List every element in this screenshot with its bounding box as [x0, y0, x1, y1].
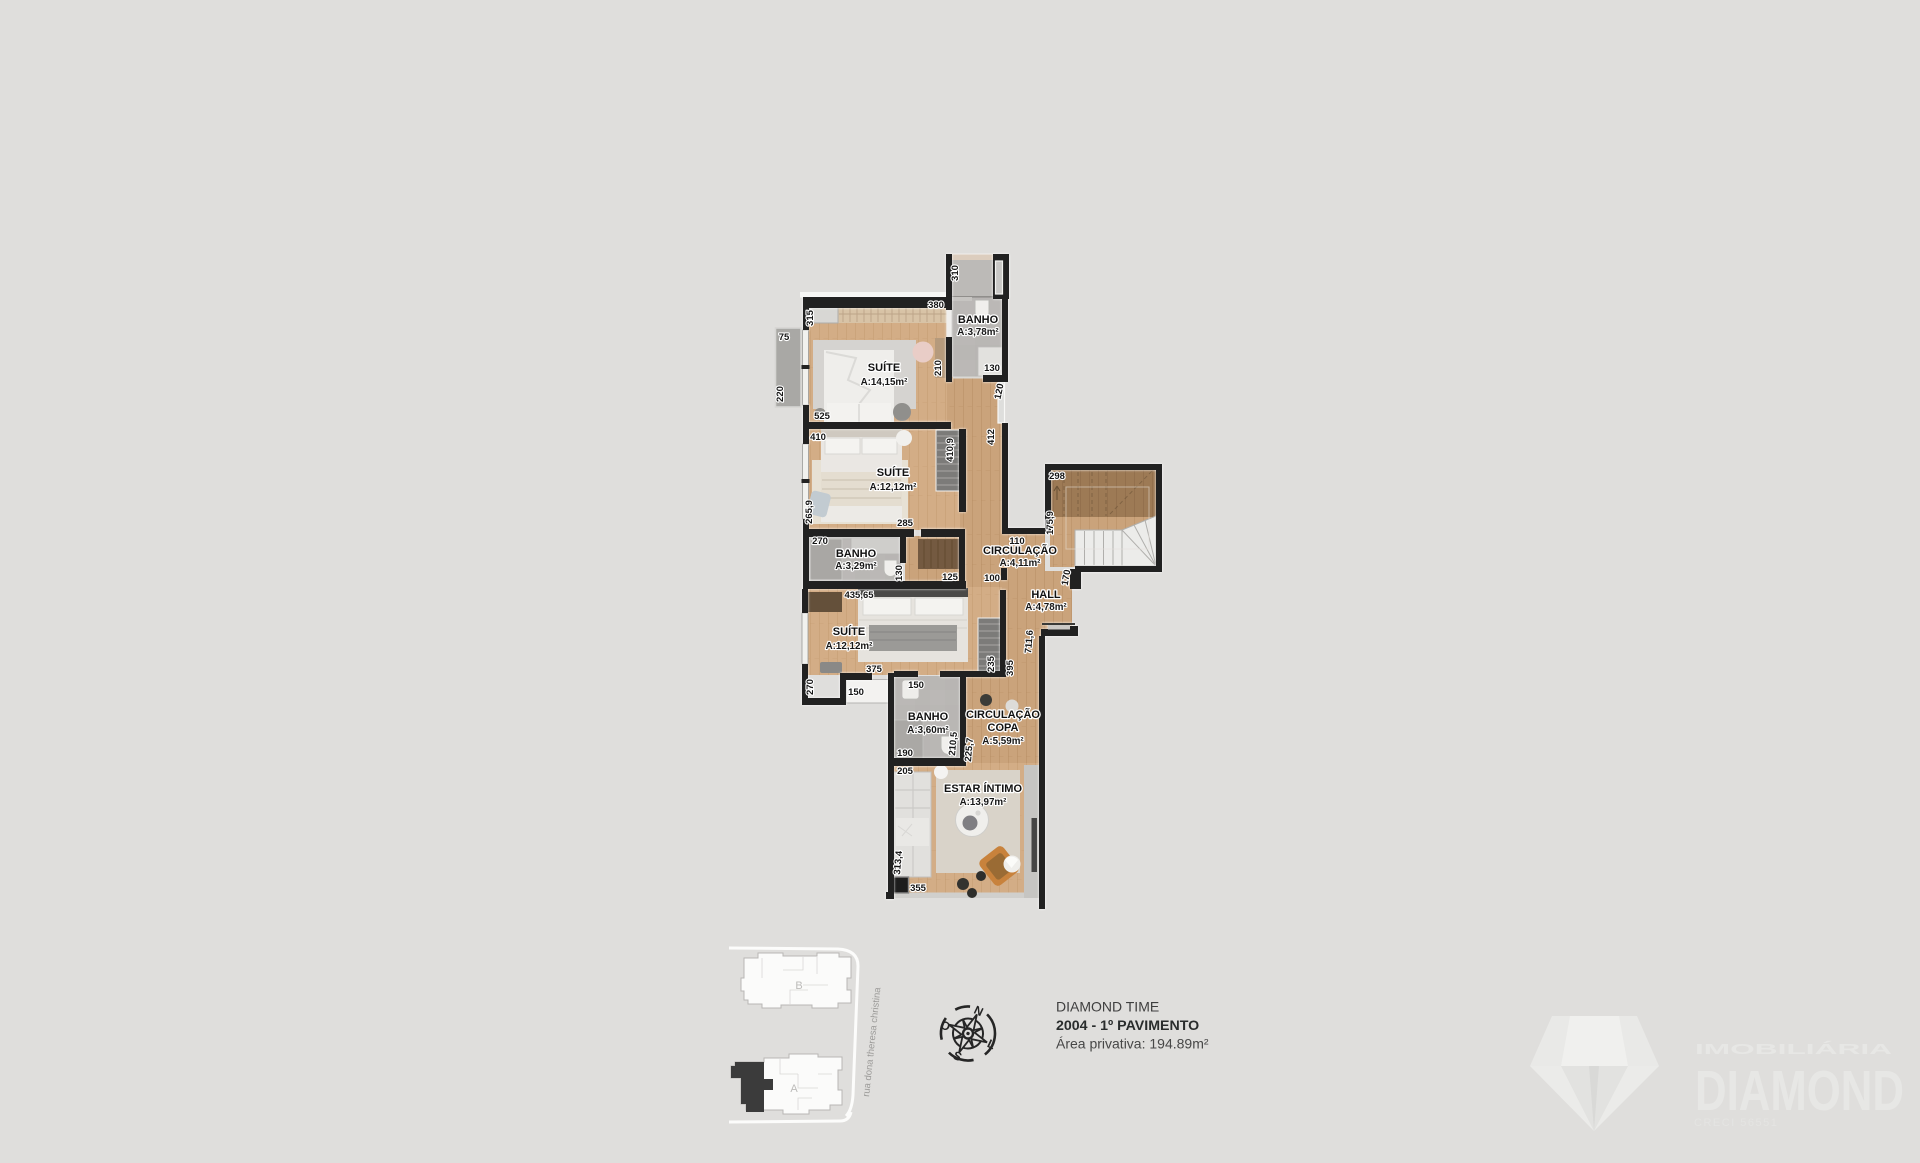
- svg-text:410,9: 410,9: [945, 438, 956, 462]
- svg-text:270: 270: [805, 679, 816, 695]
- svg-text:130: 130: [984, 363, 1000, 374]
- svg-text:CIRCULAÇÃO: CIRCULAÇÃO: [966, 708, 1040, 721]
- svg-text:75: 75: [779, 332, 790, 343]
- svg-text:525: 525: [814, 411, 831, 422]
- svg-text:BANHO: BANHO: [836, 548, 877, 560]
- svg-text:A:3,29m²: A:3,29m²: [835, 561, 877, 572]
- svg-text:395: 395: [1005, 659, 1016, 676]
- svg-text:A:4,11m²: A:4,11m²: [1000, 558, 1042, 569]
- svg-text:DIAMOND TIME: DIAMOND TIME: [1056, 999, 1159, 1015]
- svg-text:SUÍTE: SUÍTE: [833, 625, 865, 638]
- svg-text:A:3,60m²: A:3,60m²: [907, 725, 949, 736]
- svg-text:220: 220: [775, 386, 786, 402]
- svg-text:A:5,59m²: A:5,59m²: [982, 736, 1024, 747]
- svg-text:410: 410: [810, 432, 826, 443]
- svg-text:A:14,15m²: A:14,15m²: [861, 377, 909, 388]
- svg-text:315: 315: [805, 309, 816, 326]
- svg-text:SUÍTE: SUÍTE: [877, 466, 909, 479]
- svg-text:B: B: [795, 980, 802, 992]
- svg-text:A: A: [790, 1083, 798, 1095]
- svg-text:IMOBILIÁRIA: IMOBILIÁRIA: [1695, 1041, 1892, 1058]
- svg-text:Área privativa: 194.89m²: Área privativa: 194.89m²: [1056, 1036, 1209, 1052]
- svg-text:298: 298: [1049, 471, 1065, 482]
- svg-text:711,6: 711,6: [1023, 630, 1036, 654]
- svg-text:A:13,97m²: A:13,97m²: [960, 797, 1008, 808]
- svg-text:A:12,12m²: A:12,12m²: [870, 482, 918, 493]
- svg-text:210: 210: [933, 360, 944, 376]
- svg-text:BANHO: BANHO: [908, 711, 949, 723]
- svg-text:210,5: 210,5: [947, 731, 960, 756]
- svg-text:CRECI 56551: CRECI 56551: [1694, 1117, 1778, 1129]
- svg-text:2004 - 1º PAVIMENTO: 2004 - 1º PAVIMENTO: [1056, 1018, 1199, 1034]
- svg-text:125: 125: [942, 572, 959, 583]
- svg-text:235: 235: [986, 655, 997, 672]
- svg-text:380: 380: [928, 300, 944, 311]
- svg-text:130: 130: [894, 565, 905, 581]
- svg-text:190: 190: [897, 748, 913, 759]
- svg-text:270: 270: [812, 536, 828, 547]
- svg-text:412: 412: [986, 429, 997, 445]
- svg-text:265,9: 265,9: [804, 500, 815, 524]
- svg-text:BANHO: BANHO: [958, 314, 999, 326]
- svg-text:ESTAR ÍNTIMO: ESTAR ÍNTIMO: [944, 782, 1022, 795]
- svg-text:150: 150: [908, 680, 924, 691]
- svg-text:110: 110: [1009, 536, 1024, 547]
- svg-text:355: 355: [910, 883, 927, 894]
- svg-text:313,4: 313,4: [892, 850, 905, 875]
- svg-text:DIAMOND: DIAMOND: [1695, 1059, 1904, 1123]
- svg-text:175,9: 175,9: [1045, 511, 1056, 535]
- svg-text:435,65: 435,65: [844, 590, 874, 601]
- svg-text:285: 285: [897, 518, 914, 529]
- svg-text:310: 310: [950, 265, 961, 281]
- svg-text:A:12,12m²: A:12,12m²: [826, 641, 874, 652]
- svg-text:375: 375: [866, 664, 883, 675]
- svg-text:225,7: 225,7: [963, 737, 976, 762]
- svg-text:HALL: HALL: [1031, 589, 1061, 601]
- svg-text:A:4,78m²: A:4,78m²: [1025, 602, 1067, 613]
- svg-text:SUÍTE: SUÍTE: [868, 361, 900, 374]
- svg-text:COPA: COPA: [988, 722, 1019, 734]
- svg-text:100: 100: [984, 573, 1000, 584]
- svg-text:150: 150: [848, 687, 864, 698]
- svg-text:A:3,78m²: A:3,78m²: [957, 327, 999, 338]
- svg-text:205: 205: [897, 766, 914, 777]
